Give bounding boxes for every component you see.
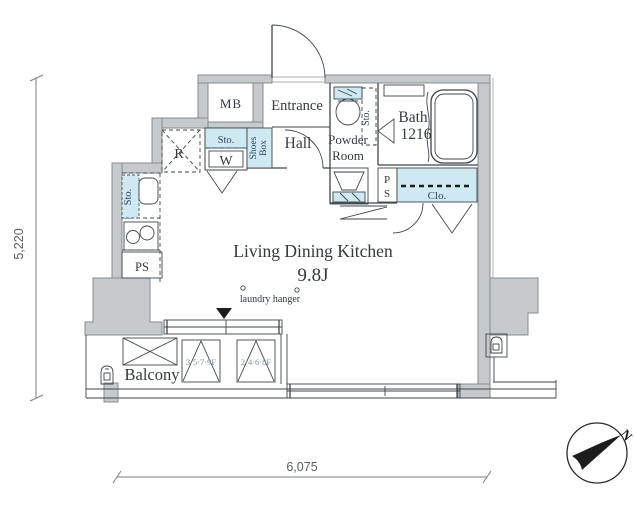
shoes-box: Shoes Box xyxy=(247,128,272,168)
kitchen: Sto. PS xyxy=(122,173,162,285)
compass-north-label: N xyxy=(618,427,635,444)
entrance-door xyxy=(272,25,325,78)
kitchen-sink xyxy=(139,178,158,204)
powder-storage-label: Sto. xyxy=(361,110,372,126)
shoes-box-label-1: Shoes xyxy=(249,136,259,159)
pipe-space-s: S xyxy=(384,188,390,200)
window-right-floors-label: 2·4·6·8F xyxy=(241,357,271,367)
bath-label: Bath xyxy=(398,109,428,126)
dimension-height-label: 5,220 xyxy=(12,228,26,259)
hall-storage-label: Sto. xyxy=(218,135,235,146)
hall-label: Hall xyxy=(285,135,312,152)
balcony-hatch-x xyxy=(123,338,177,365)
balcony-post xyxy=(104,383,118,402)
vanity xyxy=(330,168,368,204)
refrigerator-space: R xyxy=(162,130,200,172)
floor-plan-svg: 5,220 6,075 Entrance Hall MB Sto. W xyxy=(0,0,635,516)
kitchen-storage-label: Sto. xyxy=(123,189,134,206)
living-dining-kitchen: Living Dining Kitchen 9.8J laundry hange… xyxy=(216,241,393,319)
closet-folding-door xyxy=(432,204,472,233)
bath-shelf xyxy=(384,85,424,96)
closet-label: Clo. xyxy=(428,190,447,202)
refrigerator-label: R xyxy=(174,147,184,162)
floor-plan: 5,220 6,075 Entrance Hall MB Sto. W xyxy=(0,0,635,516)
ldk-label: Living Dining Kitchen xyxy=(233,241,393,261)
closet: Clo. xyxy=(393,168,477,233)
faucet-icon-left xyxy=(101,366,113,384)
compass: N xyxy=(567,423,635,483)
pipe-space-kitchen-label: PS xyxy=(135,260,149,274)
corner-bottom-right xyxy=(458,384,490,398)
pipe-space-right: P S xyxy=(378,168,397,202)
window-connector xyxy=(281,334,287,384)
bathtub xyxy=(431,90,477,163)
laundry-hanger-marker xyxy=(216,308,232,319)
meter-box-label: MB xyxy=(220,96,242,111)
dimension-vertical: 5,220 xyxy=(12,75,43,401)
washer-label: W xyxy=(219,154,233,169)
structure-right xyxy=(490,278,538,335)
folding-door xyxy=(207,171,237,193)
toilet xyxy=(334,87,362,125)
bath-size-label: 1216 xyxy=(401,126,432,143)
stove xyxy=(124,222,158,250)
balcony-label: Balcony xyxy=(125,365,181,384)
closet-door-arc xyxy=(393,203,423,233)
window-left-floors-label: 3·5·7·9F xyxy=(186,357,216,367)
laundry-hanger-label: laundry hanger xyxy=(240,294,301,305)
entrance-label: Entrance xyxy=(271,98,323,114)
powder-room-label-1: Powder xyxy=(328,132,368,147)
bath-door xyxy=(378,119,394,143)
washer-closet: Sto. W xyxy=(205,128,247,193)
balcony-hatch-left: 3·5·7·9F xyxy=(182,340,220,382)
window-left xyxy=(164,320,282,334)
ldk-size-label: 9.8J xyxy=(297,265,328,286)
balcony-hatch-right: 2·4·6·8F xyxy=(237,340,275,382)
powder-room-label-2: Room xyxy=(332,148,364,163)
shoes-box-label-2: Box xyxy=(259,140,269,156)
pipe-space-p: P xyxy=(384,174,390,186)
meter-box: MB xyxy=(208,83,253,122)
sliding-door xyxy=(340,206,387,219)
pillar-bottom-left xyxy=(85,278,162,335)
laundry-hanger: laundry hanger xyxy=(216,286,301,319)
dimension-width-label: 6,075 xyxy=(286,460,317,474)
compass-needle xyxy=(572,435,621,470)
window-right xyxy=(287,384,460,398)
pipe-space-kitchen: PS xyxy=(122,252,162,278)
dimension-horizontal: 6,075 xyxy=(113,460,491,483)
bathroom: Bath 1216 xyxy=(378,83,478,165)
